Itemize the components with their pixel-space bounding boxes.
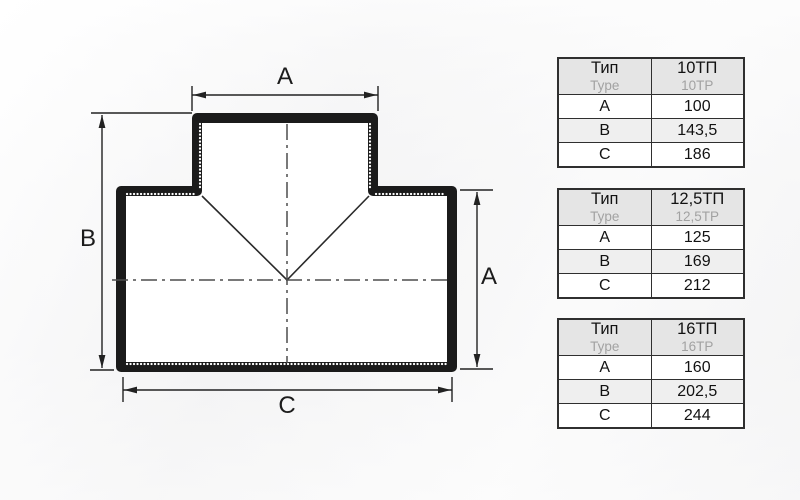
param-cell: A — [559, 226, 651, 249]
value-cell: 100 — [651, 95, 744, 118]
model-label-ru: 12,5ТП — [670, 191, 724, 208]
table-row: B 143,5 — [559, 118, 743, 142]
value-cell: 125 — [651, 226, 744, 249]
model-label-en: 12,5TP — [675, 210, 719, 224]
param-cell: B — [559, 380, 651, 403]
spec-table-10tp-header: Тип Type 10ТП 10TP — [559, 59, 743, 94]
value-cell: 169 — [651, 250, 744, 273]
param-cell: A — [559, 356, 651, 379]
model-label-ru: 10ТП — [677, 60, 717, 77]
spec-table-10tp: Тип Type 10ТП 10TP A 100 B 143,5 C 186 — [557, 57, 745, 168]
param-cell: C — [559, 274, 651, 297]
param-cell: B — [559, 119, 651, 142]
page: A B A — [0, 0, 800, 500]
model-label-en: 10TP — [681, 79, 713, 93]
type-label-ru: Тип — [591, 60, 619, 77]
tee-fitting-drawing: A B A — [0, 0, 540, 460]
param-cell: C — [559, 143, 651, 166]
model-label-en: 16TP — [681, 340, 713, 354]
dim-label-a-top: A — [277, 63, 293, 90]
table-row: C 212 — [559, 273, 743, 297]
table-row: A 100 — [559, 94, 743, 118]
spec-table-12-5tp-header: Тип Type 12,5ТП 12,5TP — [559, 190, 743, 225]
table-row: A 125 — [559, 225, 743, 249]
dim-label-c-bottom: C — [278, 392, 295, 419]
dim-label-b-left: B — [80, 225, 96, 252]
spec-table-16tp: Тип Type 16ТП 16TP A 160 B 202,5 C 244 — [557, 318, 745, 429]
param-cell: C — [559, 404, 651, 427]
type-label-en: Type — [590, 79, 619, 93]
model-label-ru: 16ТП — [677, 321, 717, 338]
type-label-en: Type — [590, 340, 619, 354]
table-row: A 160 — [559, 355, 743, 379]
table-row: C 244 — [559, 403, 743, 427]
value-cell: 160 — [651, 356, 744, 379]
type-header-cell: Тип Type — [559, 59, 651, 94]
type-label-en: Type — [590, 210, 619, 224]
model-header-cell: 12,5ТП 12,5TP — [651, 190, 744, 225]
value-cell: 202,5 — [651, 380, 744, 403]
param-cell: A — [559, 95, 651, 118]
spec-table-16tp-header: Тип Type 16ТП 16TP — [559, 320, 743, 355]
spec-table-12-5tp: Тип Type 12,5ТП 12,5TP A 125 B 169 C 212 — [557, 188, 745, 299]
value-cell: 212 — [651, 274, 744, 297]
table-row: C 186 — [559, 142, 743, 166]
dim-label-a-right: A — [481, 263, 497, 290]
type-header-cell: Тип Type — [559, 190, 651, 225]
value-cell: 143,5 — [651, 119, 744, 142]
type-label-ru: Тип — [591, 191, 619, 208]
table-row: B 202,5 — [559, 379, 743, 403]
type-label-ru: Тип — [591, 321, 619, 338]
param-cell: B — [559, 250, 651, 273]
value-cell: 244 — [651, 404, 744, 427]
type-header-cell: Тип Type — [559, 320, 651, 355]
model-header-cell: 16ТП 16TP — [651, 320, 744, 355]
value-cell: 186 — [651, 143, 744, 166]
table-row: B 169 — [559, 249, 743, 273]
model-header-cell: 10ТП 10TP — [651, 59, 744, 94]
